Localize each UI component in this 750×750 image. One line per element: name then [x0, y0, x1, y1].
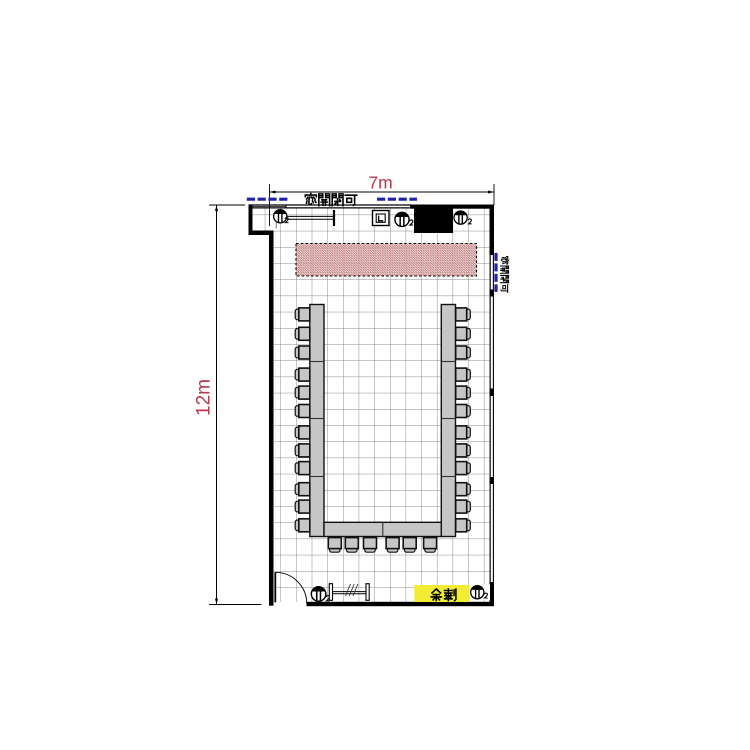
svg-text:12m: 12m — [194, 379, 215, 416]
svg-text:7m: 7m — [368, 173, 392, 193]
